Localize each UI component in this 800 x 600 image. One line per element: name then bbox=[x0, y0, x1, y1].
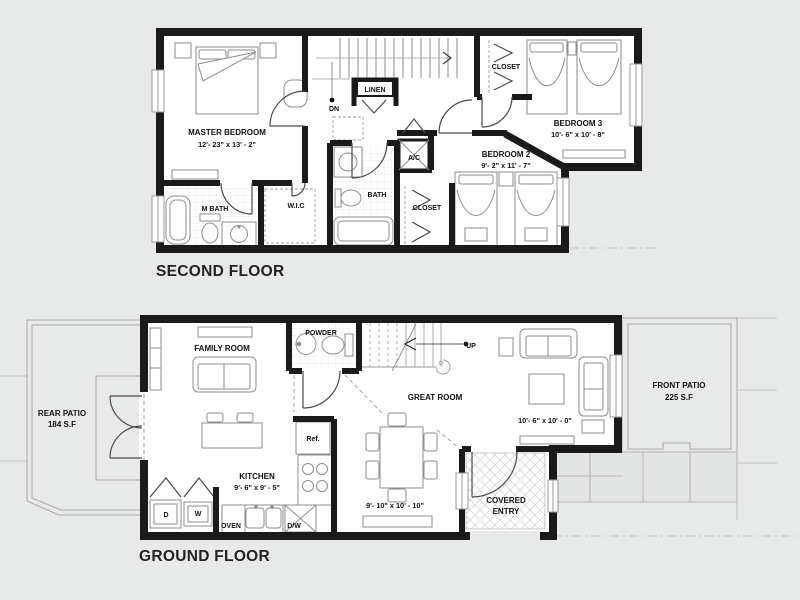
dn-marker-dot bbox=[330, 98, 335, 103]
patio-french-doors bbox=[110, 396, 142, 458]
master-bedroom-label: MASTER BEDROOM bbox=[188, 128, 266, 137]
family-room-label: FAMILY ROOM bbox=[194, 344, 250, 353]
bedroom2-label: BEDROOM 2 bbox=[482, 150, 531, 159]
closet-bedroom3-label: CLOSET bbox=[492, 64, 521, 71]
ground-floor-title: GROUND FLOOR bbox=[139, 548, 270, 565]
kitchen-dims: 9'- 6" x 9' - 5" bbox=[234, 483, 280, 492]
up-label: UP bbox=[466, 343, 476, 350]
bedroom3-window-bench bbox=[563, 150, 625, 158]
covered-entry-label-1: COVERED bbox=[486, 496, 526, 505]
kitchen-label: KITCHEN bbox=[239, 472, 275, 481]
bedroom3-label: BEDROOM 3 bbox=[554, 119, 603, 128]
closet-bedroom2-label: CLOSET bbox=[413, 205, 442, 212]
fridge-label: Ref. bbox=[306, 436, 319, 443]
m-bath-label: M BATH bbox=[202, 206, 229, 213]
powder-label: POWDER bbox=[305, 330, 337, 337]
dishwasher-label: D/W bbox=[287, 523, 301, 530]
great-room-dims: 10'- 6" x 10' - 0" bbox=[518, 416, 572, 425]
entry-steps bbox=[553, 452, 737, 502]
media-cabinet bbox=[150, 328, 161, 390]
covered-entry-floor bbox=[466, 453, 545, 529]
bedroom2-dims: 9'- 2" x 11' - 7" bbox=[481, 161, 530, 170]
front-patio-area: 225 S.F bbox=[665, 393, 693, 402]
oven-label: OVEN bbox=[221, 523, 241, 530]
linen-label: LINEN bbox=[365, 87, 386, 94]
great-room-label: GREAT ROOM bbox=[408, 393, 463, 402]
tv-console bbox=[198, 327, 252, 337]
sideboard bbox=[363, 516, 432, 527]
rear-patio-area: 184 S.F bbox=[48, 420, 76, 429]
rear-patio-label: REAR PATIO bbox=[38, 409, 86, 418]
second-floor-plan: MASTER BEDROOM 12'- 23" x 13' - 2" M BAT… bbox=[152, 32, 642, 280]
covered-entry-label-2: ENTRY bbox=[493, 507, 520, 516]
family-room-sofa bbox=[193, 357, 256, 392]
master-dresser bbox=[172, 170, 218, 179]
dining-dims: 9'- 10" x 10' - 10" bbox=[366, 501, 424, 510]
dn-label: DN bbox=[329, 106, 339, 113]
bedroom3-dims: 10'- 6" x 10' - 8" bbox=[551, 130, 605, 139]
floor-plan-canvas: MASTER BEDROOM 12'- 23" x 13' - 2" M BAT… bbox=[0, 0, 800, 600]
ground-floor-plan: FAMILY ROOM POWDER UP GREAT ROOM 10'- 6"… bbox=[27, 318, 737, 565]
ac-label: A/C bbox=[408, 155, 420, 162]
dryer-label: D bbox=[163, 512, 168, 519]
bath-label: BATH bbox=[368, 192, 387, 199]
wic-label: W.I.C bbox=[287, 203, 304, 210]
kitchen-sink bbox=[246, 508, 264, 528]
master-bedroom-dims: 12'- 23" x 13' - 2" bbox=[198, 140, 256, 149]
front-patio-label: FRONT PATIO bbox=[652, 381, 705, 390]
washer-label: W bbox=[195, 511, 202, 518]
second-floor-title: SECOND FLOOR bbox=[156, 263, 284, 280]
